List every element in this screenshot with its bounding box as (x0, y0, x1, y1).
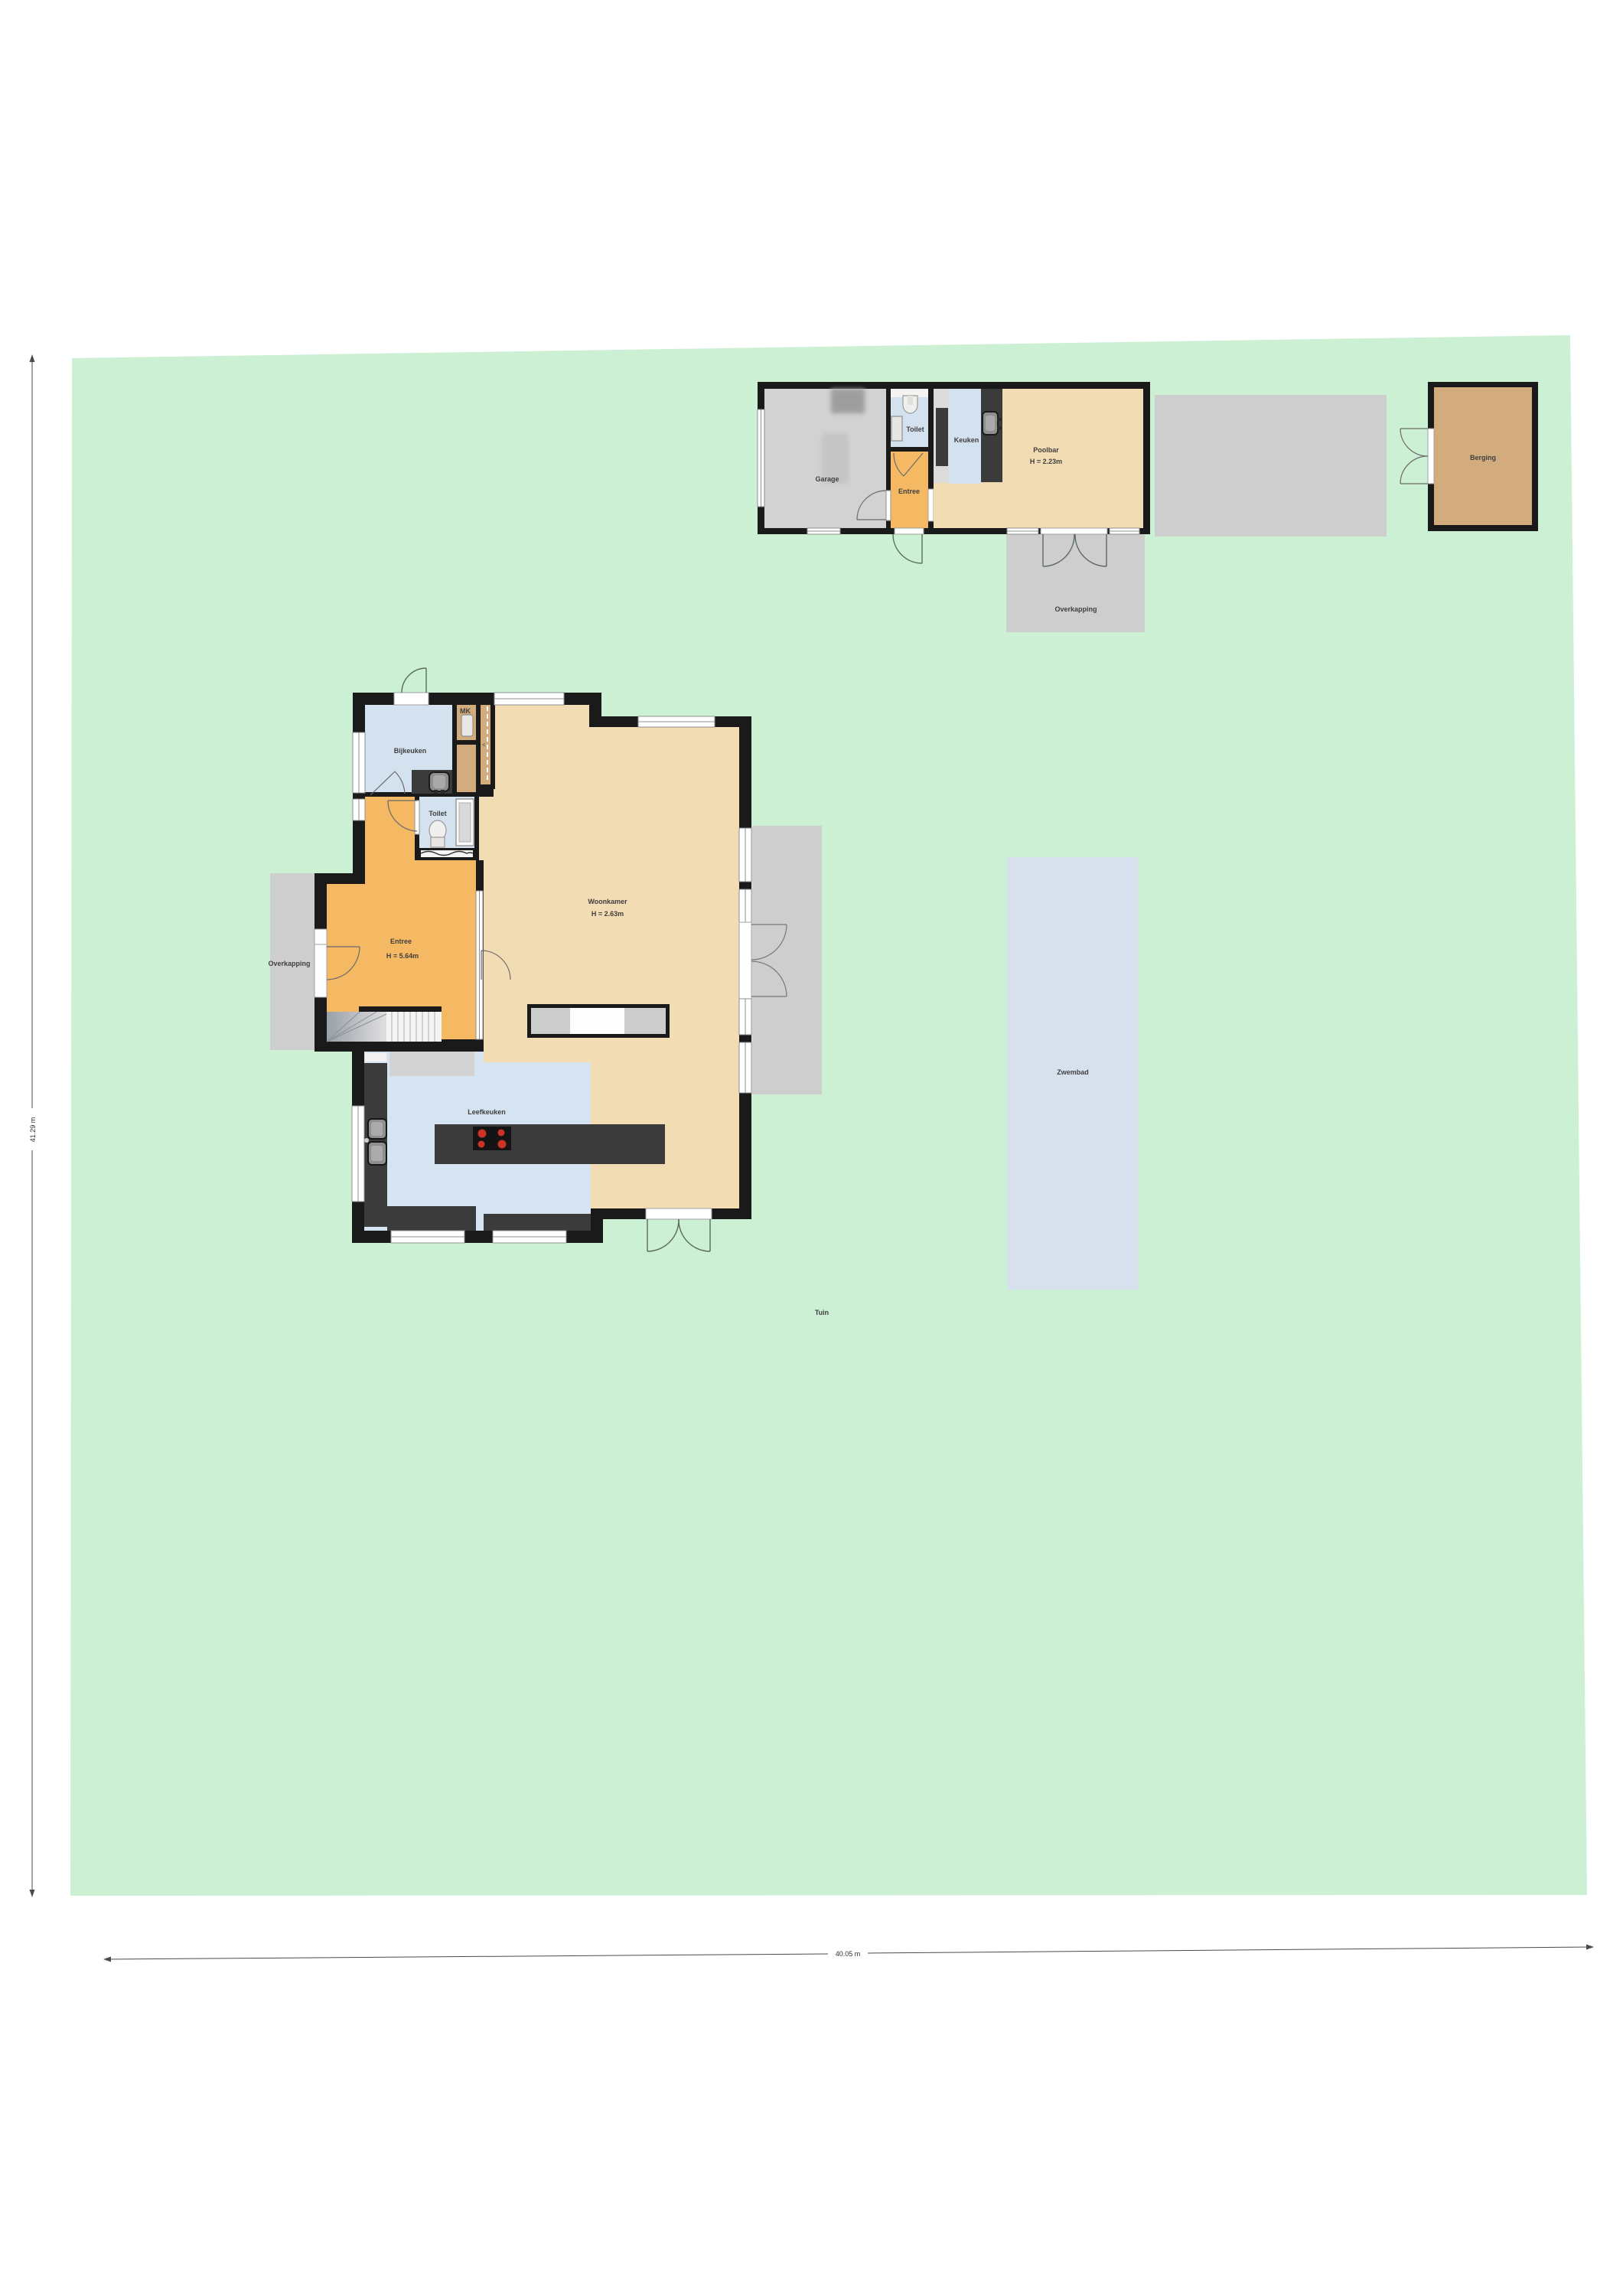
svg-text:Berging: Berging (1470, 454, 1496, 461)
svg-text:<: < (482, 742, 486, 748)
svg-text:41.29 m: 41.29 m (29, 1117, 37, 1143)
svg-text:Overkapping: Overkapping (1054, 605, 1097, 613)
svg-text:Zwembad: Zwembad (1057, 1068, 1089, 1076)
svg-text:Entree: Entree (898, 488, 920, 495)
svg-text:Keuken: Keuken (954, 436, 979, 444)
svg-text:H = 2.63m: H = 2.63m (592, 910, 624, 918)
svg-text:Bijkeuken: Bijkeuken (394, 747, 427, 755)
svg-text:Garage: Garage (815, 475, 839, 483)
svg-text:40.05 m: 40.05 m (836, 1950, 861, 1958)
svg-text:Toilet: Toilet (906, 426, 924, 433)
svg-text:Toilet: Toilet (429, 810, 446, 817)
svg-text:Overkapping: Overkapping (268, 960, 310, 967)
svg-text:Leefkeuken: Leefkeuken (468, 1108, 506, 1116)
svg-text:MK: MK (460, 707, 471, 715)
svg-text:H = 2.23m: H = 2.23m (1030, 458, 1062, 465)
svg-text:H = 5.64m: H = 5.64m (386, 952, 419, 960)
svg-text:Poolbar: Poolbar (1033, 446, 1059, 454)
svg-text:Woonkamer: Woonkamer (588, 898, 627, 905)
svg-text:Tuin: Tuin (815, 1309, 829, 1316)
svg-text:Entree: Entree (390, 938, 412, 945)
